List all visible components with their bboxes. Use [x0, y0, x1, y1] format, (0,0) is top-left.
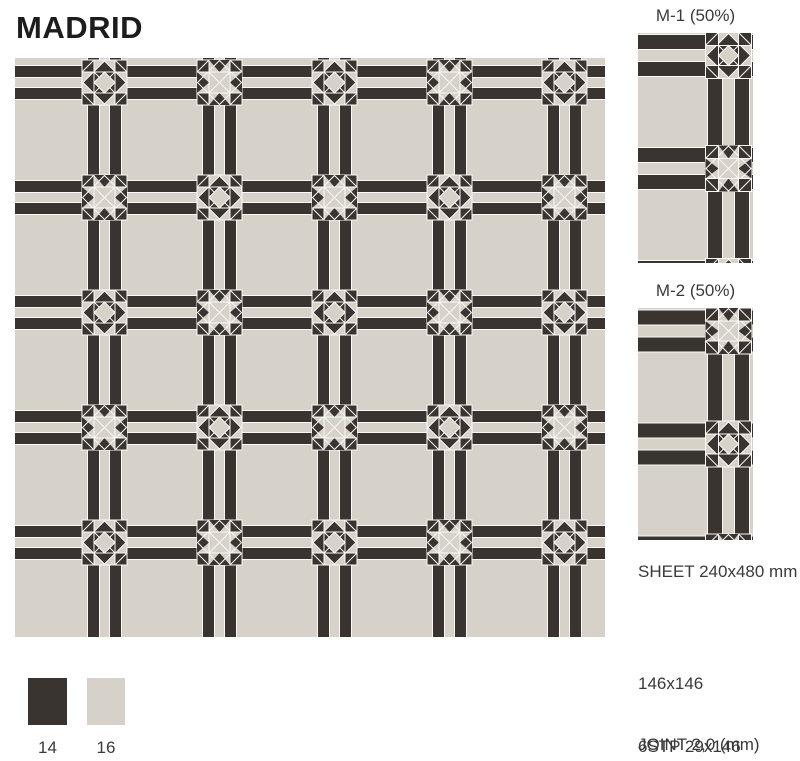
swatch-code-light: 16 [87, 738, 125, 758]
joint-label: JOINT 2,0 (mm) [638, 735, 760, 755]
page-title: MADRID [16, 10, 143, 46]
catalog-page: MADRID M-1 (50%) M-2 (50%) SHEET 240x480… [0, 0, 800, 761]
main-pattern-preview [15, 58, 605, 637]
m1-label: M-1 (50%) [638, 6, 753, 26]
swatch-code-dark: 14 [28, 738, 67, 758]
m2-label: M-2 (50%) [638, 281, 753, 301]
m2-pattern-preview [638, 308, 753, 540]
color-swatch-dark [28, 678, 67, 725]
sheet-size-label: SHEET 240x480 mm [638, 562, 797, 582]
color-swatch-light [87, 678, 125, 725]
spec-line: 146x146 [638, 673, 780, 696]
m1-pattern-preview [638, 33, 753, 263]
